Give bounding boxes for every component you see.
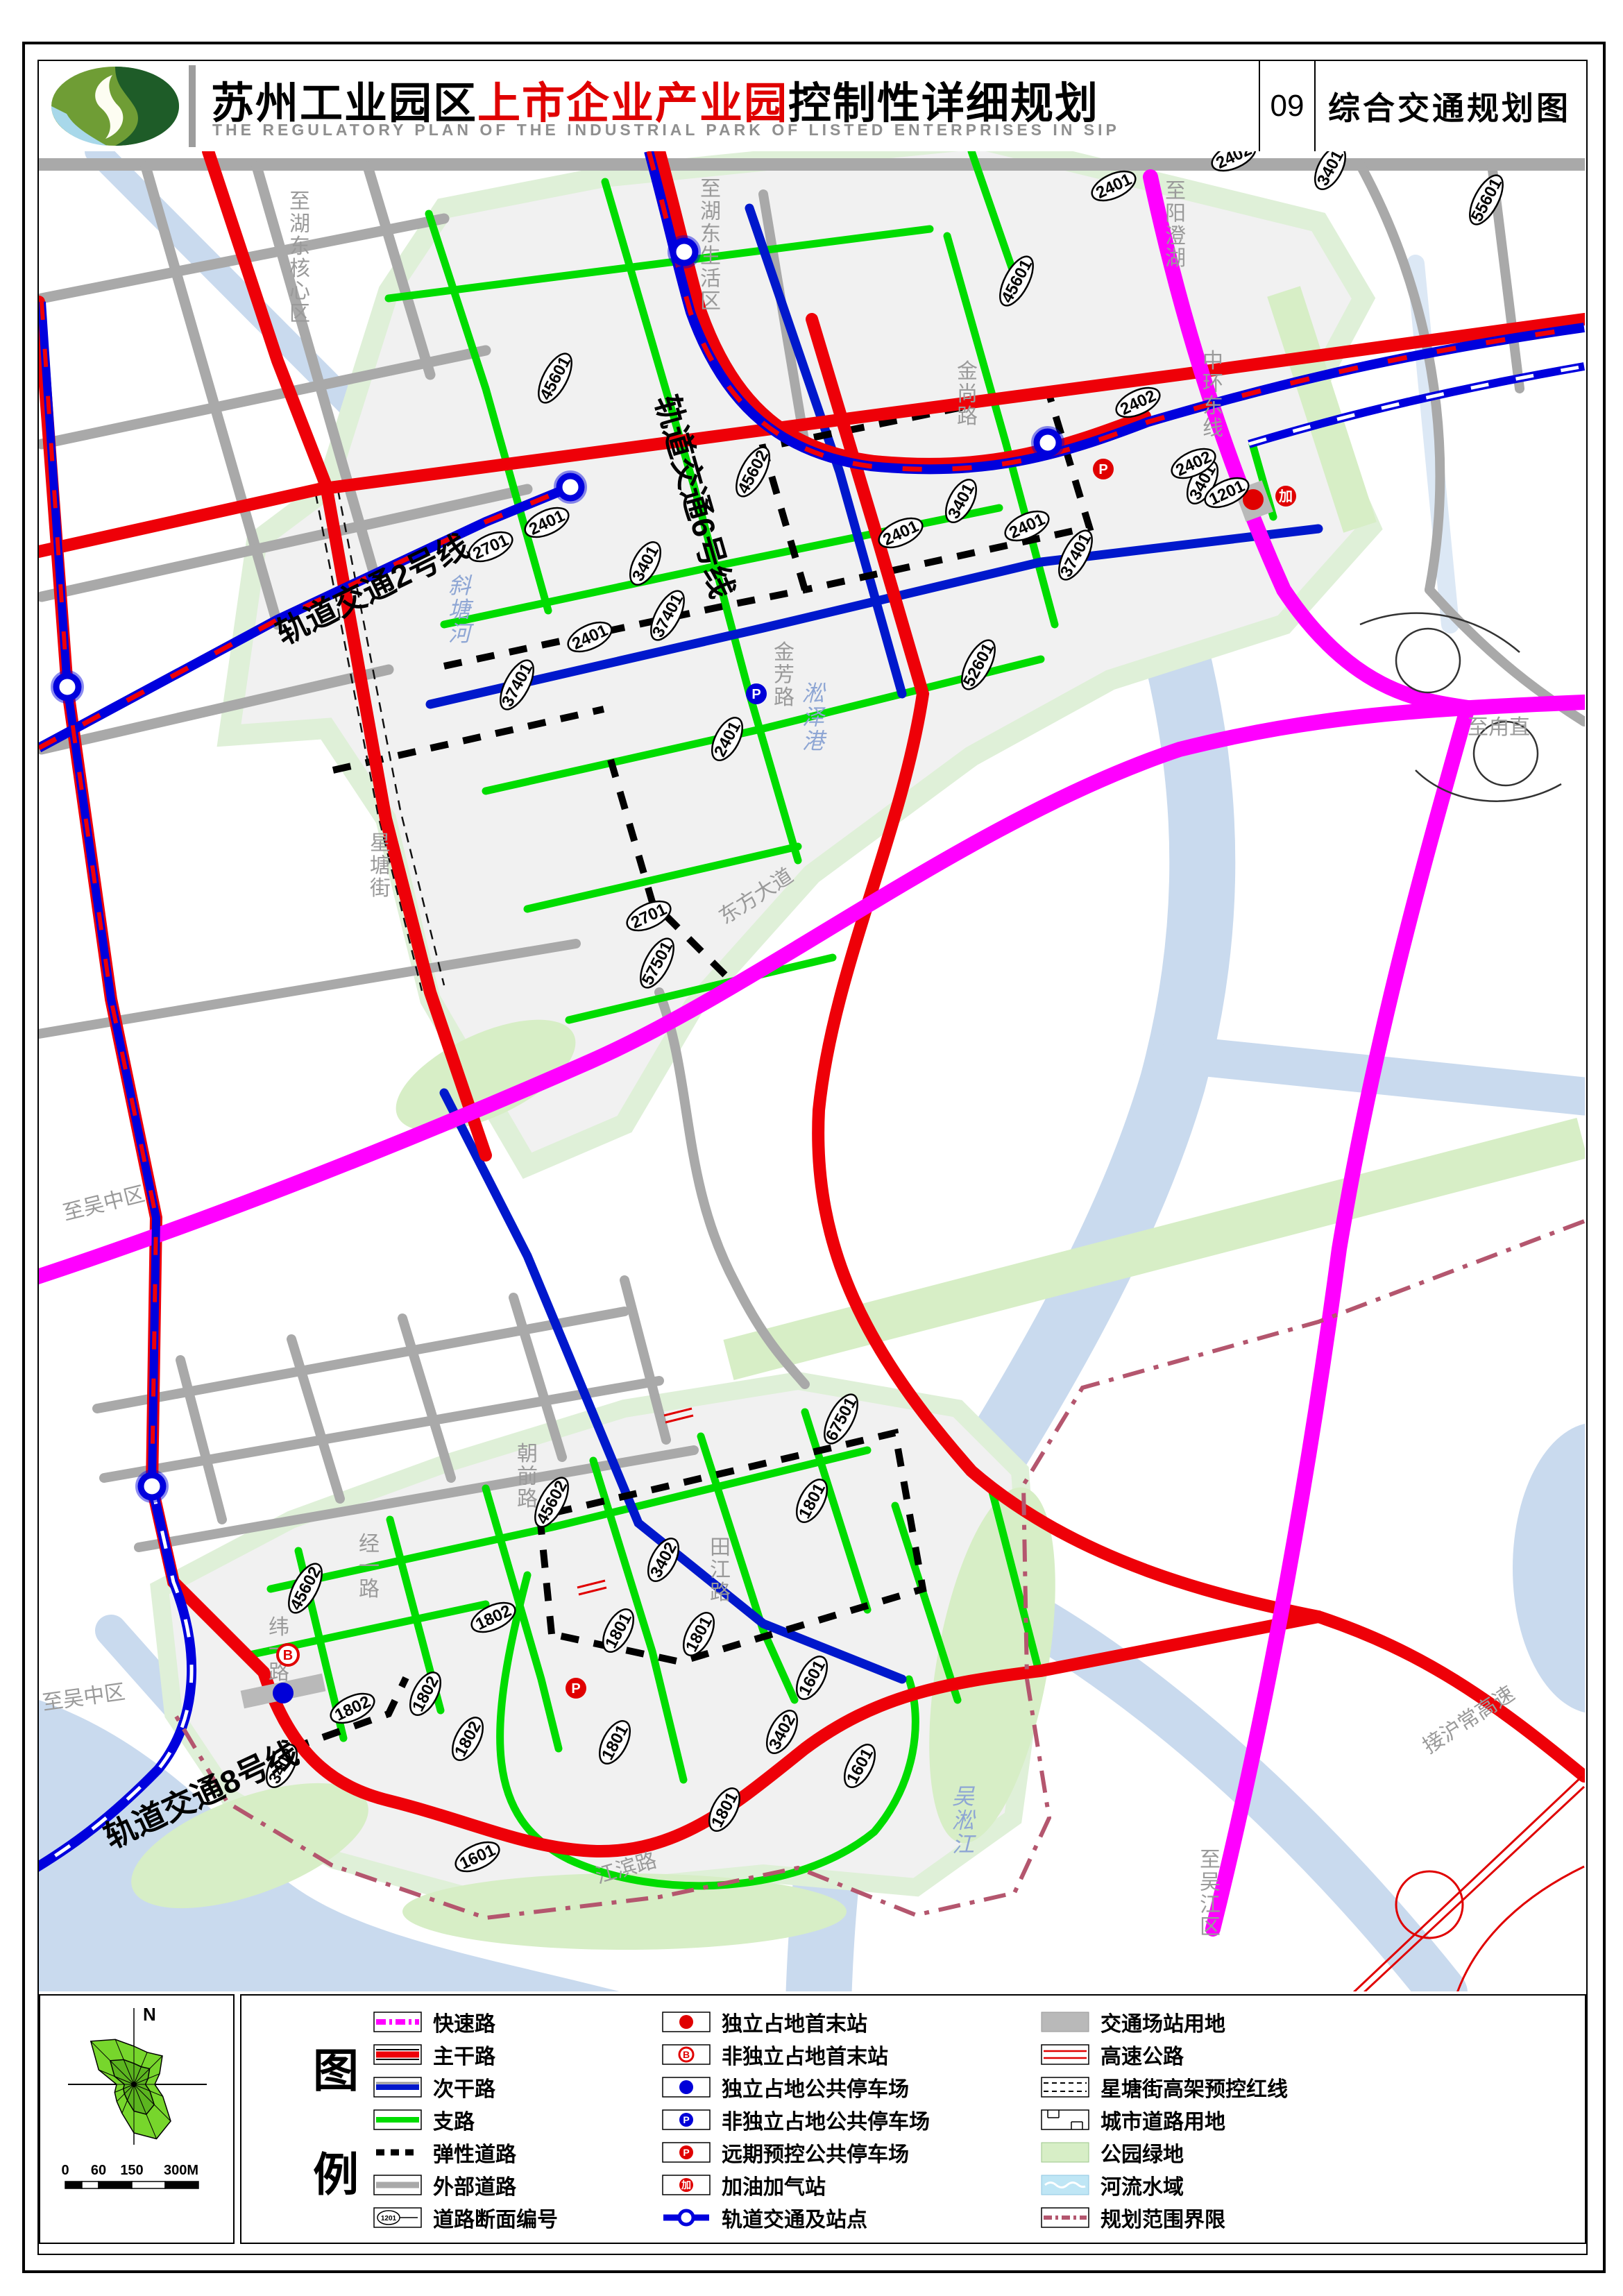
legend-item-section: 1201道路断面编号 [373, 2201, 644, 2234]
road-name-label: 星塘街 [370, 832, 391, 900]
road-name-label: 田江路 [710, 1536, 731, 1604]
scale-bar: 060150300M [61, 2163, 198, 2188]
secondary-swatch [373, 2077, 422, 2098]
svg-text:P: P [1098, 462, 1107, 477]
legend-item-parking-own: 独立占地公共停车场 [662, 2070, 1023, 2103]
rail-station[interactable] [555, 472, 586, 502]
poi-blue-dot[interactable] [273, 1683, 294, 1703]
svg-text:B: B [283, 1648, 293, 1663]
legend-item-parking-future: P远期预控公共停车场 [662, 2136, 1023, 2168]
road-name-label: 金尚路 [957, 360, 978, 428]
highway-interchange-se [1353, 1776, 1584, 1991]
highway-swatch [1041, 2044, 1089, 2065]
viaduct-line-swatch [1041, 2077, 1089, 2098]
poi-red-jia[interactable]: 加 [1275, 486, 1296, 507]
legend-label-arterial: 主干路 [433, 2039, 495, 2070]
legend-column-roads: 快速路主干路次干路支路弹性道路外部道路1201道路断面编号 [373, 2005, 644, 2234]
rail-station[interactable] [669, 237, 699, 267]
water-swatch [1041, 2175, 1089, 2195]
legend-item-transport-land: 交通场站用地 [1041, 2005, 1339, 2038]
legend-item-terminal-own: 独立占地首末站 [662, 2005, 1023, 2038]
road-land-swatch [1041, 2109, 1089, 2130]
legend-item-arterial: 主干路 [373, 2038, 644, 2070]
legend-item-external: 外部道路 [373, 2168, 644, 2201]
svg-text:P: P [751, 687, 760, 702]
sheet-number: 09 [1260, 61, 1314, 151]
road-name-label: 朝前路 [517, 1443, 538, 1511]
map-canvas[interactable]: 星塘街金芳路金尚路东方大道中环东线朝前路纬一路经一路田江路江滨路 斜塘河淞泽港吴… [39, 151, 1585, 1991]
parking-own-swatch [662, 2077, 711, 2098]
svg-text:1201: 1201 [381, 2215, 397, 2222]
legend-label-branch: 支路 [433, 2104, 475, 2135]
legend-label-highway: 高速公路 [1101, 2039, 1184, 2070]
legend-item-elastic: 弹性道路 [373, 2136, 644, 2168]
legend-column-facilities: 独立占地首末站B非独立占地首末站独立占地公共停车场P非独立占地公共停车场P远期预… [662, 2005, 1023, 2234]
legend-item-branch: 支路 [373, 2103, 644, 2136]
legend-item-secondary: 次干路 [373, 2070, 644, 2103]
wind-rose: N [68, 2004, 207, 2145]
legend-label-water: 河流水域 [1101, 2170, 1184, 2200]
legend-label-rail: 轨道交通及站点 [722, 2202, 867, 2233]
legend-item-terminal-shared: B非独立占地首末站 [662, 2038, 1023, 2070]
legend-item-park: 公园绿地 [1041, 2136, 1339, 2168]
legend-item-road-land: 城市道路用地 [1041, 2103, 1339, 2136]
legend-box: 图 例 快速路主干路次干路支路弹性道路外部道路1201道路断面编号 独立占地首末… [240, 1994, 1586, 2244]
legend-item-expressway: 快速路 [373, 2005, 644, 2038]
direction-label: 至湖东核心区 [289, 190, 310, 325]
compass-box: N 060150300M [39, 1994, 235, 2244]
poi-red-p[interactable]: P [1093, 459, 1114, 479]
legend-title-char1: 图 [313, 2034, 359, 2100]
expressway-swatch [373, 2012, 422, 2032]
legend-label-parking-own: 独立占地公共停车场 [722, 2072, 909, 2102]
elastic-swatch [373, 2142, 422, 2163]
direction-label: 至吴中区 [60, 1182, 146, 1225]
legend-label-gas: 加油加气站 [722, 2170, 826, 2200]
river-name-label: 吴淞江 [952, 1784, 976, 1857]
direction-label: 至甪直 [1468, 716, 1530, 739]
road-name-label: 经一路 [359, 1533, 380, 1601]
svg-text:P: P [571, 1681, 580, 1697]
svg-text:加: 加 [1278, 488, 1293, 504]
direction-label: 至吴中区 [41, 1681, 126, 1715]
legend-label-park: 公园绿地 [1101, 2137, 1184, 2168]
arterial-swatch [373, 2044, 422, 2065]
rail-swatch [662, 2207, 711, 2228]
direction-label: 至吴江区 [1200, 1848, 1221, 1939]
poi-red-p[interactable]: P [566, 1678, 586, 1699]
legend-item-boundary: 规划范围界限 [1041, 2201, 1339, 2234]
legend-label-parking-future: 远期预控公共停车场 [722, 2137, 909, 2168]
legend-item-highway: 高速公路 [1041, 2038, 1339, 2070]
legend-label-viaduct-line: 星塘街高架预控红线 [1101, 2072, 1288, 2102]
header: 苏州工业园区上市企业产业园控制性详细规划 THE REGULATORY PLAN… [39, 61, 1583, 151]
rail-station[interactable] [52, 672, 83, 702]
page-subtitle-en: THE REGULATORY PLAN OF THE INDUSTRIAL PA… [212, 121, 1120, 139]
legend-label-parking-shared: 非独立占地公共停车场 [722, 2104, 930, 2135]
traffic-plan-map[interactable]: 星塘街金芳路金尚路东方大道中环东线朝前路纬一路经一路田江路江滨路 斜塘河淞泽港吴… [39, 151, 1585, 1991]
legend-band: N 060150300M 图 例 快速路主干路次干路支路弹性道路外部道路1201… [39, 1993, 1585, 2243]
road-name-label: 中环东线 [1203, 350, 1223, 440]
legend-title: 图 例 [308, 2015, 364, 2223]
svg-text:B: B [683, 2049, 690, 2060]
parking-future-swatch: P [662, 2142, 711, 2163]
transport-land-swatch [1041, 2012, 1089, 2032]
direction-label: 至阳澄湖 [1165, 180, 1186, 270]
legend-item-viaduct-line: 星塘街高架预控红线 [1041, 2070, 1339, 2103]
scale-tick: 60 [91, 2163, 106, 2178]
legend-label-road-land: 城市道路用地 [1101, 2104, 1225, 2135]
scale-tick: 150 [120, 2163, 143, 2178]
boundary-swatch [1041, 2207, 1089, 2228]
header-divider-bar [189, 65, 196, 147]
legend-item-rail: 轨道交通及站点 [662, 2201, 1023, 2234]
legend-label-transport-land: 交通场站用地 [1101, 2007, 1225, 2037]
poi-red-b[interactable]: B [278, 1644, 298, 1665]
legend-item-water: 河流水域 [1041, 2168, 1339, 2201]
legend-label-expressway: 快速路 [433, 2007, 495, 2037]
scale-tick: 300M [164, 2163, 198, 2178]
legend-label-external: 外部道路 [433, 2170, 516, 2200]
river-name-label: 淞泽港 [802, 681, 827, 754]
direction-label: 至湖东生活区 [700, 178, 721, 313]
plan-sheet: 苏州工业园区上市企业产业园控制性详细规划 THE REGULATORY PLAN… [0, 0, 1623, 2296]
branch-swatch [373, 2109, 422, 2130]
north-label: N [143, 2004, 156, 2025]
legend-title-char2: 例 [313, 2138, 359, 2204]
legend-label-terminal-own: 独立占地首末站 [722, 2007, 867, 2037]
road-name-label: 金芳路 [774, 641, 794, 709]
parking-shared-swatch: P [662, 2109, 711, 2130]
road-section-number: 3401 [1309, 151, 1352, 194]
legend-column-land: 交通场站用地高速公路星塘街高架预控红线城市道路用地公园绿地河流水域规划范围界限 [1041, 2005, 1339, 2234]
park-swatch [1041, 2142, 1089, 2163]
svg-text:加: 加 [681, 2179, 691, 2191]
legend-item-gas: 加加油加气站 [662, 2168, 1023, 2201]
scale-tick: 0 [61, 2163, 69, 2178]
svg-text:P: P [683, 2114, 689, 2125]
legend-label-secondary: 次干路 [433, 2072, 495, 2102]
external-swatch [373, 2175, 422, 2195]
rail-station[interactable] [137, 1471, 167, 1502]
legend-label-terminal-shared: 非独立占地首末站 [722, 2039, 888, 2070]
legend-label-elastic: 弹性道路 [433, 2137, 516, 2168]
section-swatch: 1201 [373, 2207, 422, 2228]
sip-logo [46, 65, 185, 147]
terminal-own-swatch [662, 2012, 711, 2032]
rail-station[interactable] [1033, 427, 1063, 458]
legend-item-parking-shared: P非独立占地公共停车场 [662, 2103, 1023, 2136]
gas-swatch: 加 [662, 2175, 711, 2195]
legend-label-section: 道路断面编号 [433, 2202, 558, 2233]
svg-text:P: P [683, 2147, 689, 2158]
terminal-shared-swatch: B [662, 2044, 711, 2065]
legend-label-boundary: 规划范围界限 [1101, 2202, 1225, 2233]
sheet-name: 综合交通规划图 [1316, 61, 1583, 151]
poi-blue-p[interactable]: P [746, 683, 767, 704]
